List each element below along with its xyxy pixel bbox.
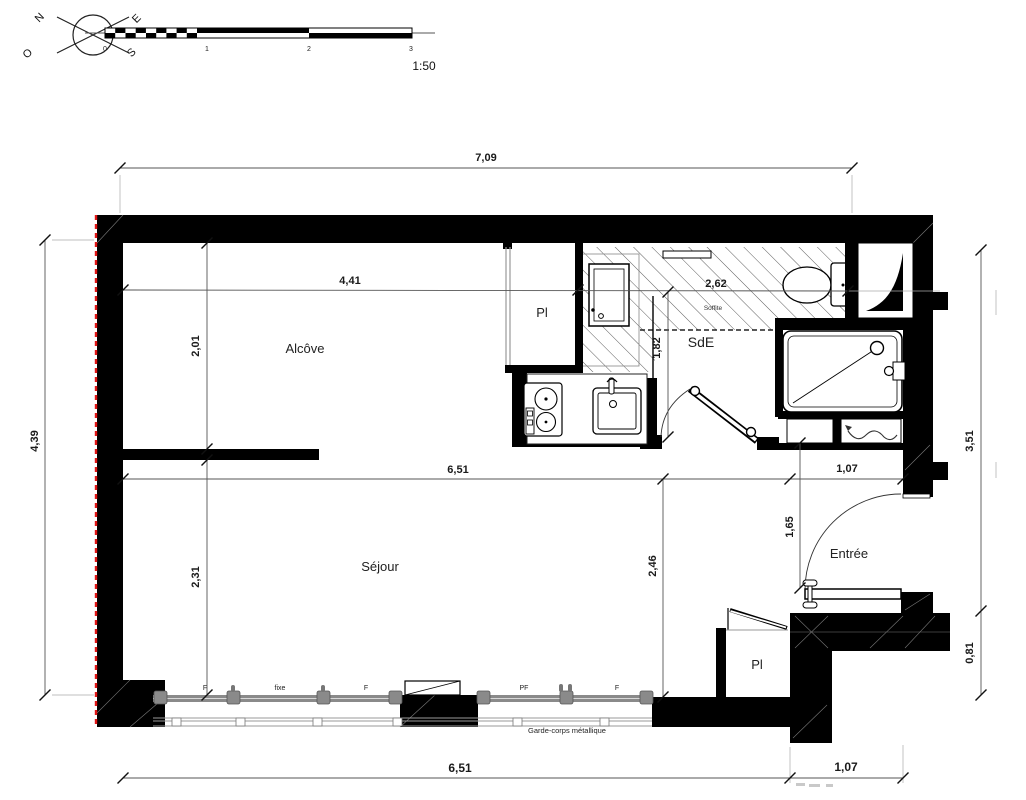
wall-stub-right-2: [930, 462, 948, 480]
scale-tick-3: 3: [409, 46, 413, 53]
room-label-alcove: Alcôve: [285, 341, 324, 356]
wall-bottom: [652, 697, 792, 727]
kitchen: [524, 374, 647, 444]
wall-shower-partition: [775, 325, 783, 417]
dim-alcove-depth: 2,01: [190, 335, 202, 356]
dim-bottom-sejour: 6,51: [448, 761, 472, 775]
window-label-f1: F: [203, 685, 207, 692]
scale-tick-0: 0: [103, 46, 107, 53]
shower-drain: [871, 342, 884, 355]
window-label-fixe: fixe: [275, 685, 286, 692]
dim-soffit-width: 2,62: [705, 278, 726, 290]
scale-ratio-label: 1:50: [412, 59, 436, 73]
cooktop: [524, 383, 562, 436]
dim-sejour-width: 6,51: [447, 464, 468, 476]
wall-stub-right-1: [930, 292, 948, 310]
room-label-sejour: Séjour: [361, 559, 399, 574]
shower-tray: [783, 331, 905, 412]
dim-left-total: 4,39: [29, 430, 41, 451]
window-label-f3: F: [615, 685, 619, 692]
appliance: [589, 264, 629, 326]
wall-right: [903, 330, 933, 497]
wall-right-upper: [913, 223, 933, 330]
wall-end-trim: [903, 494, 930, 498]
sde-door-handle-2: [747, 428, 756, 437]
entry-door-leaf: [805, 589, 901, 599]
window-label-pf: PF: [520, 685, 529, 692]
dim-alcove-width: 4,41: [339, 275, 360, 287]
sde-door-handle-1: [691, 387, 700, 396]
scale-tick-1: 1: [205, 46, 209, 53]
wall-left: [97, 215, 123, 727]
window-niche-top-right: [858, 243, 913, 318]
soffit-label: Soffite: [704, 305, 723, 312]
window-symbol: [405, 681, 460, 695]
wall-top: [97, 215, 933, 243]
sde-niche-shelf: [663, 251, 711, 258]
wall-window-pier: [400, 695, 478, 727]
dim-right-lower: 0,81: [964, 642, 976, 663]
scale-tick-2: 2: [307, 46, 311, 53]
dim-sde-depth: 1,82: [651, 337, 663, 358]
dim-bottom-entry: 1,07: [834, 760, 858, 774]
room-label-sde: SdE: [688, 334, 714, 350]
floor-plan-sheet: 7,09 4,41 2,62 2,01 1,82 6,51 1,07 4,39 …: [0, 0, 1026, 800]
dim-sejour-depth-upper: 2,31: [190, 566, 202, 587]
dim-entry-depth: 1,65: [784, 516, 796, 537]
room-label-entree: Entrée: [830, 546, 868, 561]
room-label-closet-top: Pl: [536, 305, 548, 320]
faucet: [609, 378, 614, 394]
room-label-closet-bottom: Pl: [751, 657, 763, 672]
dim-top-total: 7,09: [475, 152, 496, 164]
wall-alcove-partition: [123, 449, 319, 460]
duct-box: [787, 419, 833, 443]
floor-plan-drawing: 7,09 4,41 2,62 2,01 1,82 6,51 1,07 4,39 …: [0, 0, 1026, 800]
guardrail-label: Garde-corps métallique: [528, 726, 606, 735]
window-label-f2: F: [364, 685, 368, 692]
dim-right-upper: 3,51: [964, 430, 976, 451]
dim-entry-width: 1,07: [836, 463, 857, 475]
dim-sejour-depth: 2,46: [647, 555, 659, 576]
